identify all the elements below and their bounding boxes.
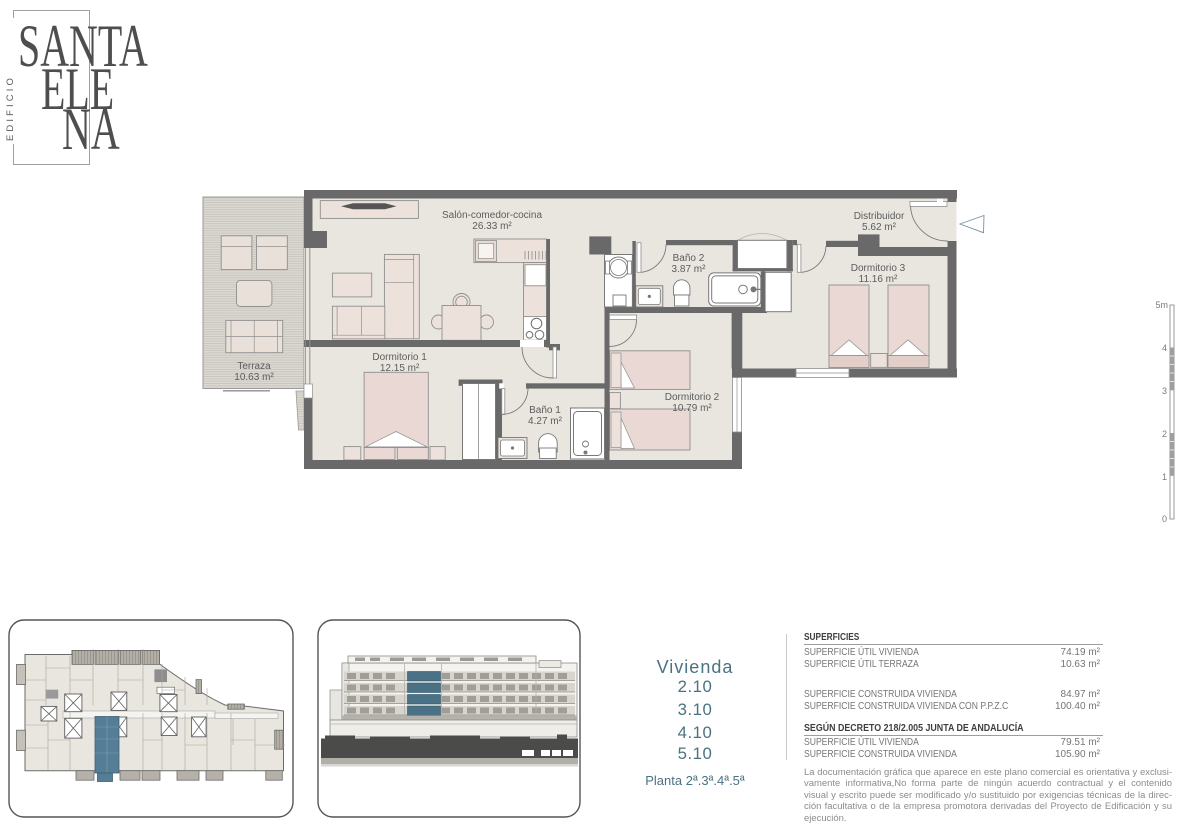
svg-text:4: 4 — [1162, 343, 1167, 353]
svg-text:Salón-comedor-cocina: Salón-comedor-cocina — [442, 210, 542, 221]
svg-text:Dormitorio 1: Dormitorio 1 — [372, 352, 427, 363]
svg-text:10.79 m²: 10.79 m² — [672, 403, 712, 414]
svg-text:12.15 m²: 12.15 m² — [380, 363, 420, 374]
svg-text:0: 0 — [1162, 514, 1167, 524]
svg-text:Baño 1: Baño 1 — [529, 405, 561, 416]
svg-text:11.16 m²: 11.16 m² — [859, 274, 898, 285]
svg-text:5.62 m²: 5.62 m² — [862, 222, 897, 233]
svg-text:Distribuidor: Distribuidor — [854, 211, 905, 222]
svg-text:2: 2 — [1162, 429, 1167, 439]
svg-text:10.63 m²: 10.63 m² — [234, 372, 274, 383]
svg-text:Terraza: Terraza — [237, 361, 271, 372]
svg-text:3: 3 — [1162, 386, 1167, 396]
svg-text:Dormitorio 2: Dormitorio 2 — [665, 392, 720, 403]
svg-text:4.27 m²: 4.27 m² — [528, 416, 563, 427]
svg-text:Baño 2: Baño 2 — [673, 253, 705, 264]
svg-text:26.33 m²: 26.33 m² — [472, 221, 512, 232]
svg-text:5m: 5m — [1155, 300, 1168, 310]
svg-text:Dormitorio 3: Dormitorio 3 — [851, 263, 906, 274]
svg-text:3.87 m²: 3.87 m² — [672, 264, 707, 275]
svg-text:1: 1 — [1162, 472, 1167, 482]
